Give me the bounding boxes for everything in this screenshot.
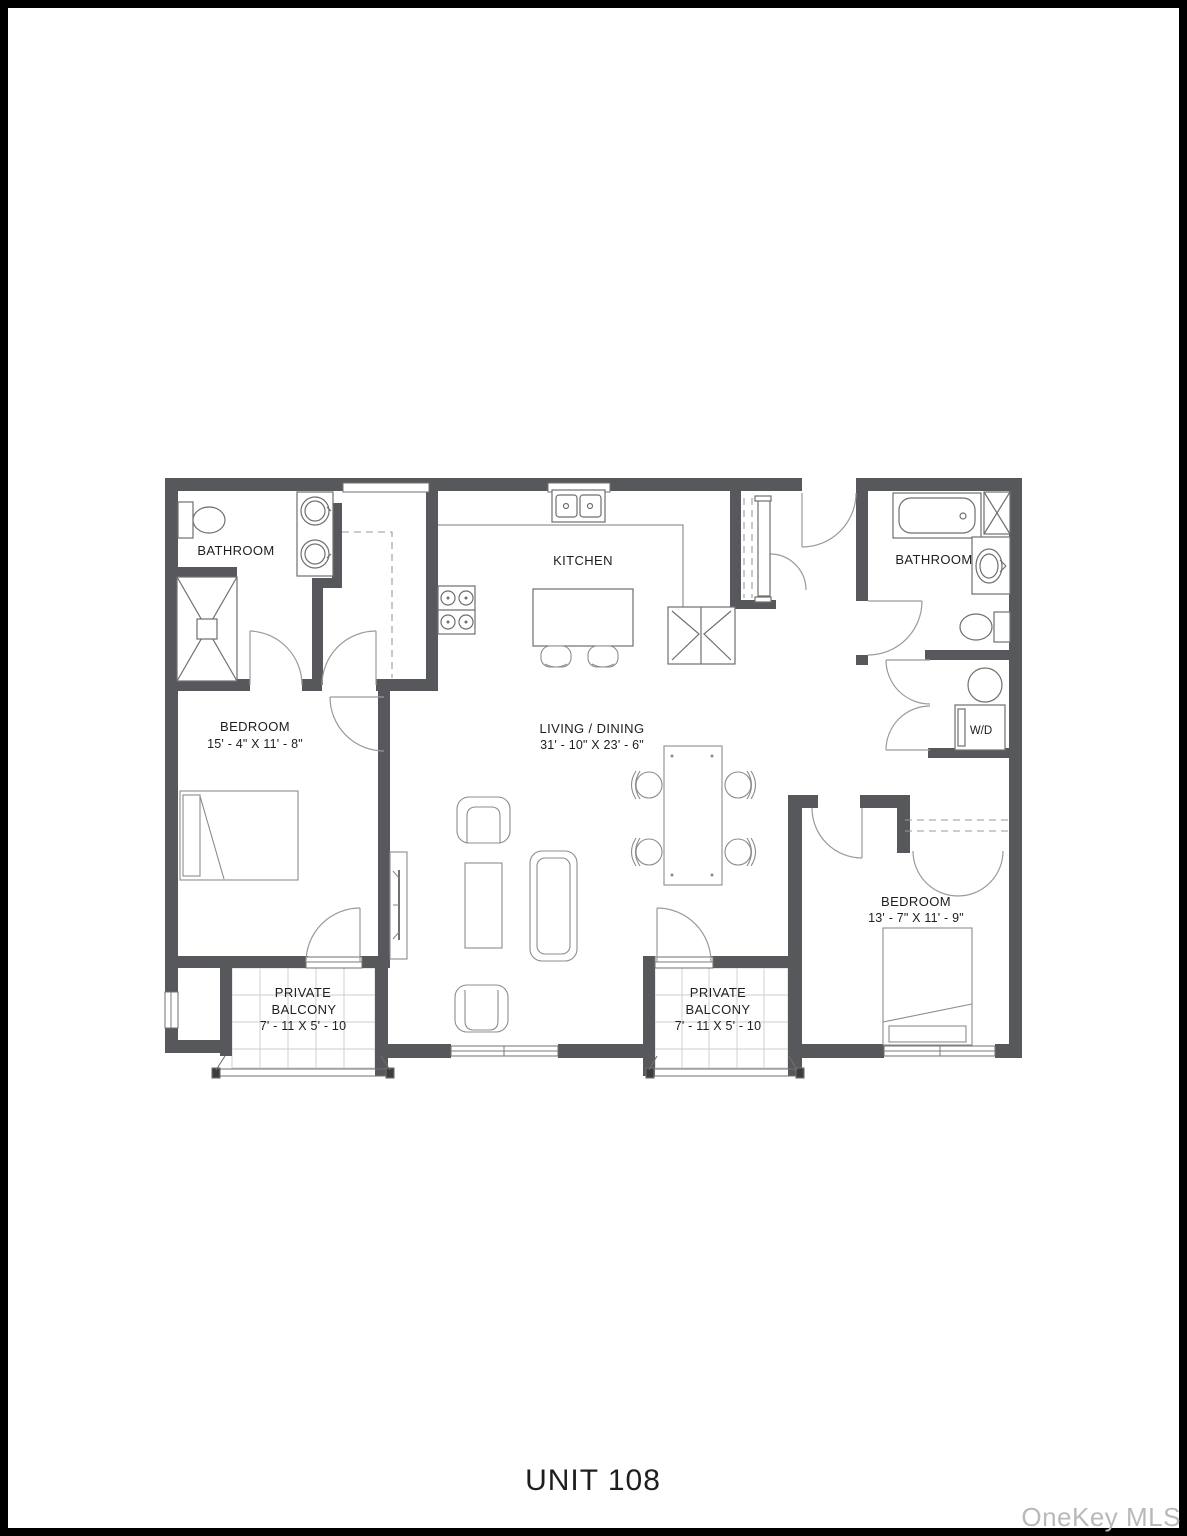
floor-plan-canvas: BATHROOM KITCHEN BATHROOM BEDROOM 15' - … <box>0 0 1187 1536</box>
utility-sink-fixture <box>968 668 1002 702</box>
window-bedroom-right <box>884 1046 995 1056</box>
bedroom-right-dims: 13' - 7" X 11' - 9" <box>868 911 964 925</box>
window-left-wall <box>165 992 178 1028</box>
bed <box>180 791 298 880</box>
balcony-right-label-2: BALCONY <box>686 1002 751 1017</box>
shower-niche-fixture <box>984 492 1010 534</box>
page-background <box>0 0 1187 1536</box>
balcony-left-threshold <box>306 957 362 968</box>
bedroom-right-furniture <box>883 928 972 1045</box>
coffee-table <box>465 863 502 948</box>
armchair-bottom <box>455 985 508 1032</box>
bathroom-left-label: BATHROOM <box>197 543 274 558</box>
kitchen-sink-fixture <box>552 490 605 522</box>
balcony-right-label-1: PRIVATE <box>690 985 747 1000</box>
bedroom-left-furniture <box>180 791 298 880</box>
bathtub-fixture <box>893 493 981 538</box>
sofa <box>530 851 577 961</box>
bed <box>883 928 972 1045</box>
refrigerator-fixture <box>668 607 735 664</box>
bedroom-left-dims: 15' - 4" X 11' - 8" <box>207 737 303 751</box>
living-dining-dims: 31' - 10" X 23' - 6" <box>540 738 644 752</box>
dining-table <box>664 746 722 885</box>
toilet-fixture <box>960 612 1010 642</box>
living-dining-label: LIVING / DINING <box>540 721 645 736</box>
armchair-top <box>457 797 510 843</box>
balcony-left-label-1: PRIVATE <box>275 985 332 1000</box>
washer-dryer-label: W/D <box>970 725 992 737</box>
balcony-left-dims: 7' - 11 X 5' - 10 <box>260 1019 346 1033</box>
range-fixture <box>438 586 475 634</box>
shower-fixture <box>177 577 237 681</box>
unit-title: UNIT 108 <box>525 1464 661 1497</box>
bedroom-right-label: BEDROOM <box>881 894 951 909</box>
vanity-fixture <box>972 537 1010 594</box>
bathroom-right-label: BATHROOM <box>895 552 972 567</box>
balcony-right-dims: 7' - 11 X 5' - 10 <box>675 1019 761 1033</box>
balcony-left-label-2: BALCONY <box>272 1002 337 1017</box>
balcony-right-threshold <box>655 957 713 968</box>
bedroom-left-label: BEDROOM <box>220 719 290 734</box>
window-living <box>451 1046 558 1056</box>
kitchen-label: KITCHEN <box>553 553 613 568</box>
double-vanity-fixture <box>297 492 333 576</box>
tv-console <box>390 852 407 959</box>
watermark-text: OneKey MLS <box>1021 1502 1181 1532</box>
